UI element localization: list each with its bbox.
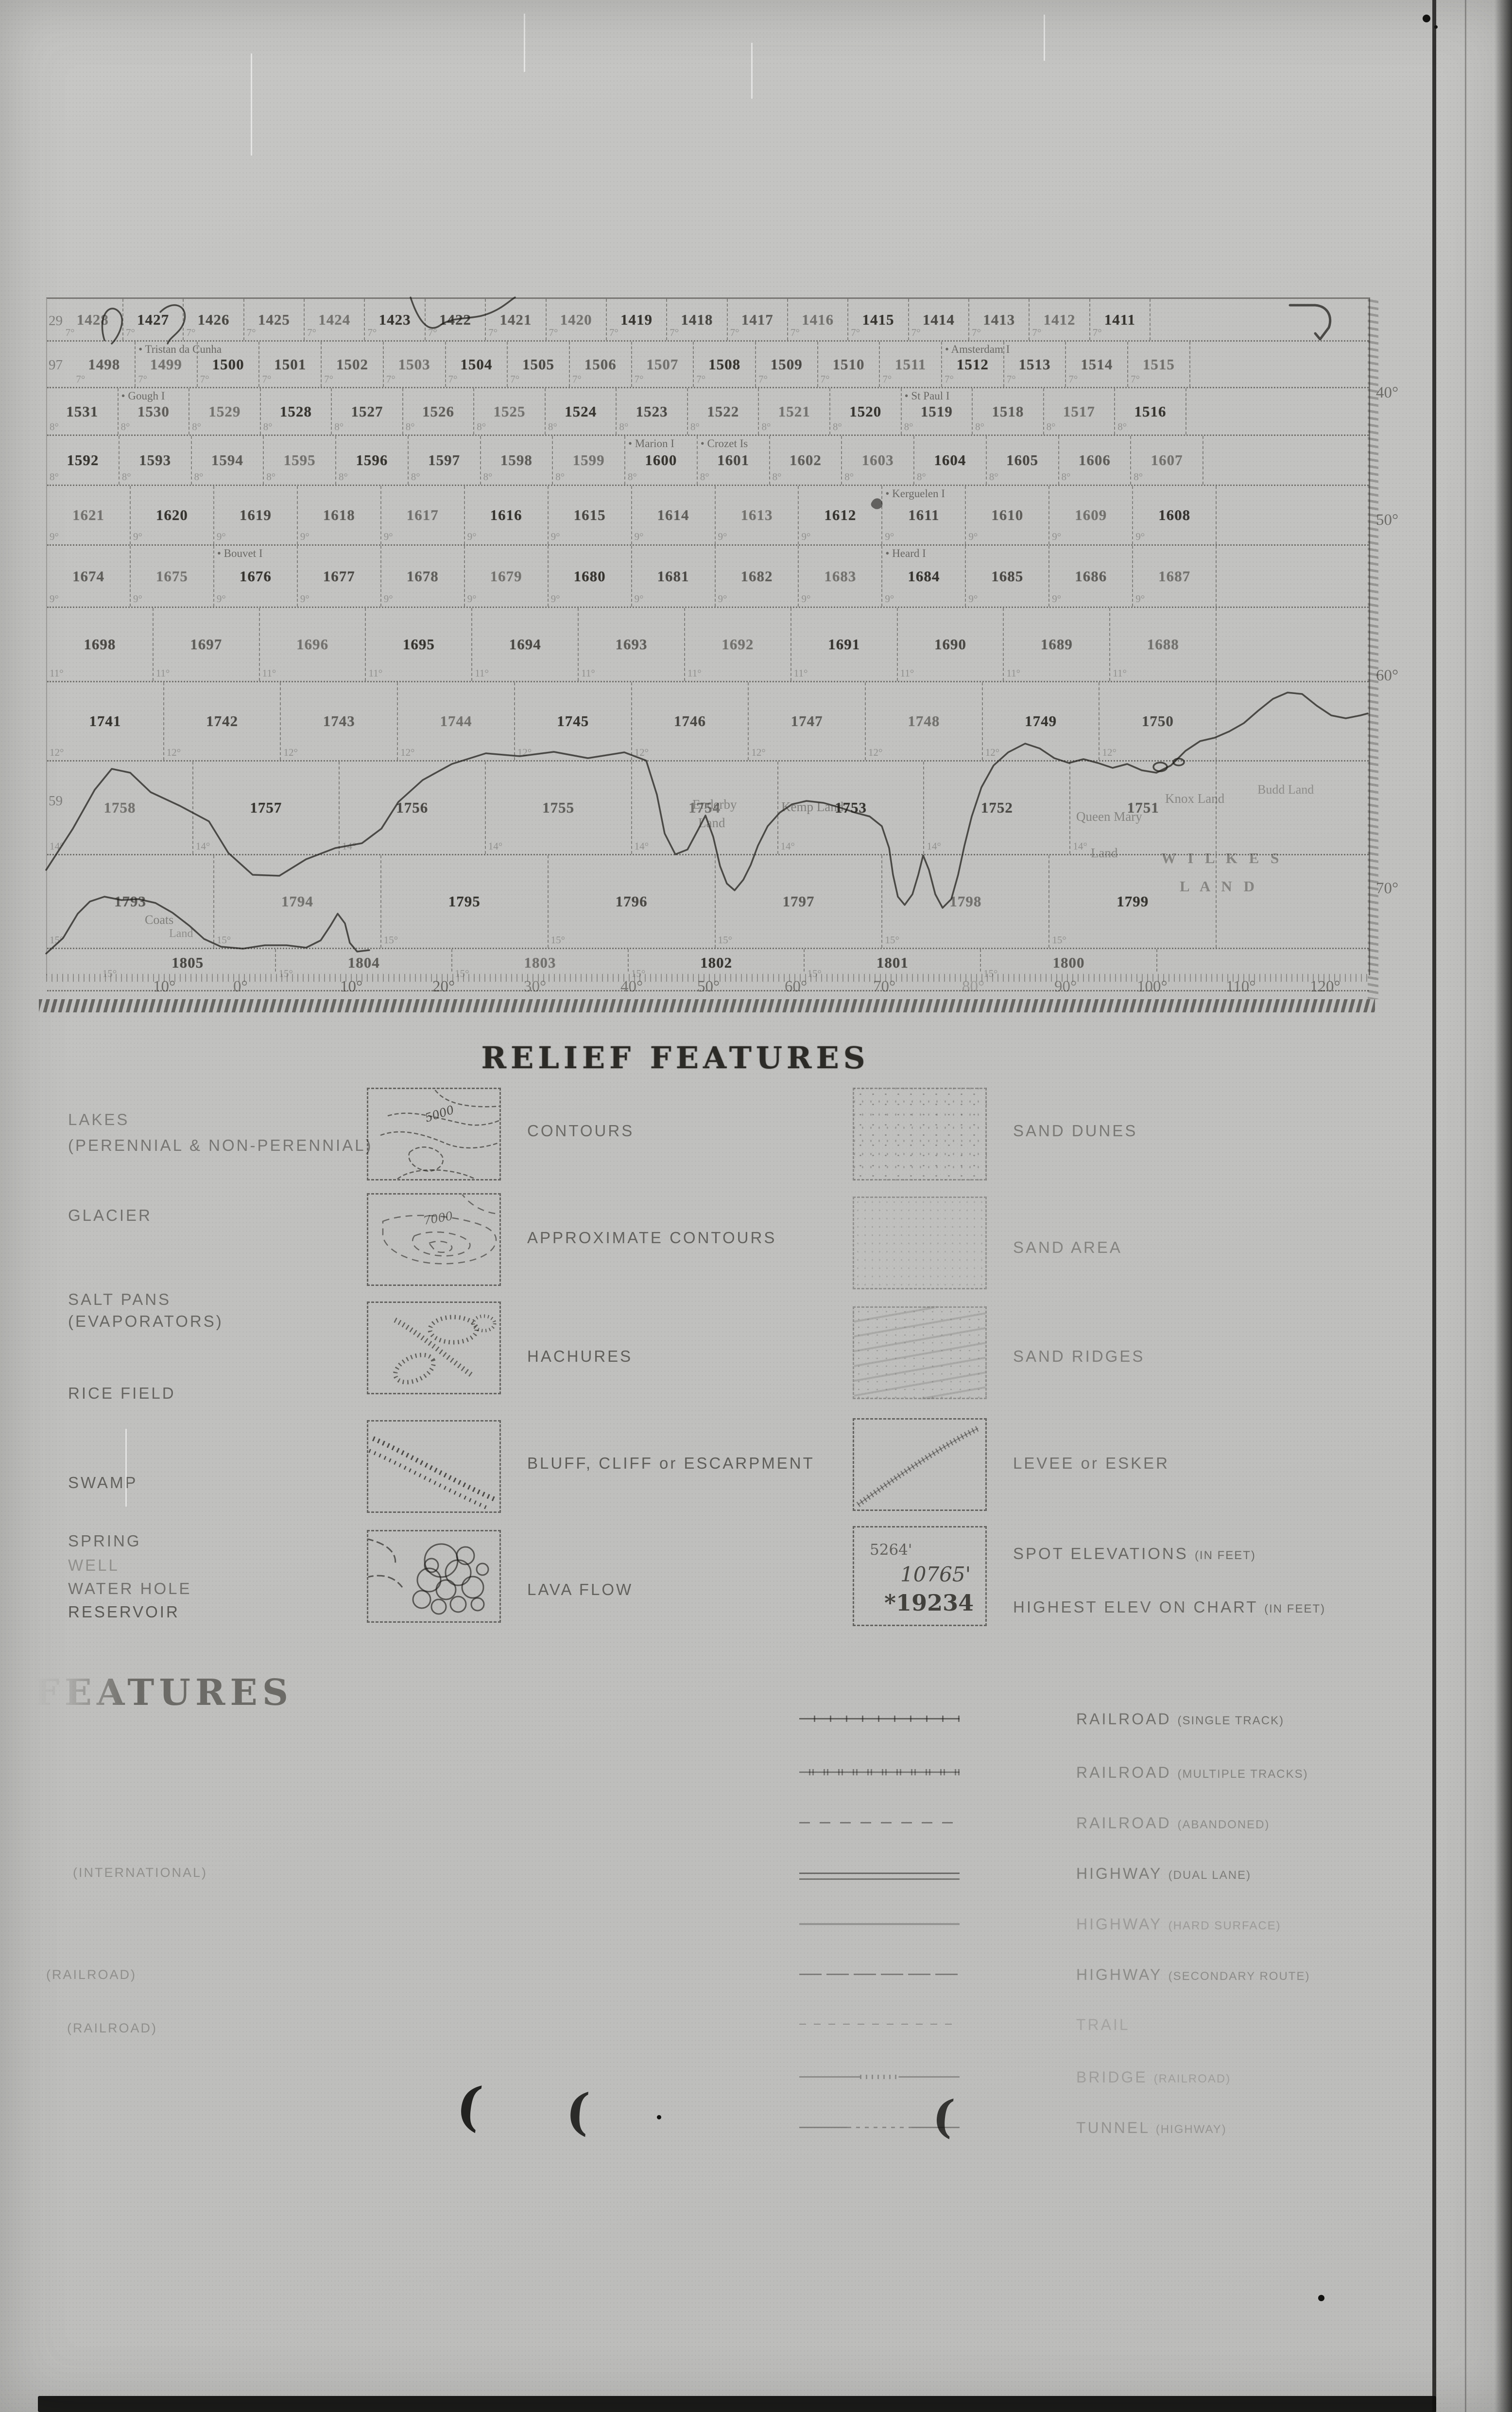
latitude-label: 50° — [1376, 511, 1398, 529]
sand-ridges-swatch-icon — [853, 1306, 987, 1399]
film-speck — [1434, 25, 1438, 29]
longitude-label: 90° — [1054, 978, 1077, 996]
relief-feature-name: SALT PANS — [68, 1290, 171, 1309]
cultural-row-name: HIGHWAY — [1076, 1915, 1168, 1933]
spot-elevations-swatch: 5264' 10765' *19234 — [853, 1526, 987, 1626]
island-name-note: • Marion I — [628, 437, 674, 450]
island-name-note: • Bouvet I — [217, 547, 263, 560]
relief-feature-name: GLACIER — [68, 1206, 152, 1225]
approximate-contours-swatch-icon: 7000 — [367, 1193, 501, 1286]
film-bottom-bar — [38, 2396, 1436, 2412]
cultural-row-subname: (SECONDARY ROUTE) — [1168, 1970, 1310, 1983]
cultural-row-label: HIGHWAY (HARD SURFACE) — [1076, 1915, 1281, 1933]
cultural-row-label: TRAIL — [1076, 2016, 1130, 2034]
white-scratch — [524, 14, 525, 72]
white-scratch — [1044, 15, 1045, 61]
cultural-row-subname: (DUAL LANE) — [1168, 1869, 1251, 1882]
film-speck — [1318, 2295, 1324, 2301]
island-name-note: • Kerguelen I — [885, 487, 945, 500]
land-name-label: Budd Land — [1257, 782, 1314, 797]
film-paren-artifact: ( — [452, 2074, 485, 2138]
longitude-label: 110° — [1226, 978, 1255, 996]
scanned-chart-legend-page: 2914287°14277°14267°14257°14247°14237°14… — [0, 0, 1512, 2412]
contours-label: CONTOURS — [527, 1122, 634, 1140]
cultural-row-name: BRIDGE — [1076, 2068, 1154, 2086]
relief-feature-name: SWAMP — [68, 1474, 137, 1492]
sand-dunes-label: SAND DUNES — [1013, 1122, 1137, 1140]
cultural-row-name: HIGHWAY — [1076, 1966, 1168, 1983]
relief-feature-name: RICE FIELD — [68, 1384, 176, 1403]
relief-feature-name: RESERVOIR — [68, 1603, 180, 1621]
antarctic-coastline-drawing — [46, 297, 1368, 974]
longitude-label: 60° — [785, 978, 807, 996]
cultural-row-name: TUNNEL — [1076, 2119, 1156, 2136]
cultural-row-label: RAILROAD (ABANDONED) — [1076, 1814, 1270, 1832]
cultural-row-name: RAILROAD — [1076, 1764, 1177, 1781]
rr-single-line-sample — [799, 1718, 960, 1719]
white-scratch — [125, 1429, 127, 1507]
contour-value: 5000 — [423, 1103, 456, 1125]
land-name-label: Enderby — [692, 797, 737, 812]
levee-esker-swatch-icon — [853, 1418, 987, 1511]
cultural-row-subname: (RAILROAD) — [1154, 2072, 1231, 2085]
rr-aband-line-sample — [799, 1822, 960, 1823]
cultural-row-subname: (HIGHWAY) — [1156, 2123, 1227, 2136]
relief-features-title: RELIEF FEATURES — [481, 1040, 870, 1076]
longitude-label: 40° — [620, 978, 643, 996]
land-name-label: Kemp Land — [781, 799, 843, 815]
film-edge-line-2 — [1465, 0, 1466, 2412]
cultural-row-subname: (HARD SURFACE) — [1168, 1919, 1281, 1932]
film-speck — [1423, 15, 1430, 22]
longitude-label: 30° — [524, 978, 546, 996]
cultural-row-name: RAILROAD — [1076, 1814, 1177, 1832]
white-scratch — [251, 53, 252, 156]
kerguelen-island-blob — [871, 498, 883, 509]
rr-multi-line-sample — [799, 1771, 960, 1773]
hwy-sec-line-sample — [799, 1974, 960, 1975]
cultural-row-name: TRAIL — [1076, 2016, 1130, 2033]
land-name-label: Land — [1091, 846, 1117, 861]
latitude-label: 40° — [1376, 384, 1398, 402]
island-name-note: • Crozet Is — [701, 437, 748, 450]
grid-edge-partial-number: 59 — [49, 793, 63, 809]
relief-feature-name: WATER HOLE — [68, 1579, 192, 1598]
coast-fragment-africa-tip — [411, 297, 515, 328]
sand-area-label: SAND AREA — [1013, 1238, 1122, 1257]
cultural-row-subname: (SINGLE TRACK) — [1177, 1714, 1284, 1727]
bluff-cliff-escarpment-label: BLUFF, CLIFF or ESCARPMENT — [527, 1454, 815, 1473]
film-paren-artifact: ( — [564, 2082, 592, 2141]
grid-edge-partial-number: 97 — [49, 357, 63, 373]
cultural-row-name: RAILROAD — [1076, 1710, 1177, 1728]
island-name-note: • St Paul I — [905, 390, 950, 402]
island-name-note: • Tristan da Cunha — [138, 343, 222, 356]
island-name-note: • Heard I — [885, 547, 926, 560]
relief-feature-subname: (PERENNIAL & NON-PERENNIAL) — [68, 1136, 373, 1155]
land-name-label: Land — [698, 816, 725, 831]
lava-flow-label: LAVA FLOW — [527, 1580, 633, 1599]
film-speck — [657, 2115, 661, 2119]
highest-elev-label: HIGHEST ELEV ON CHART (IN FEET) — [1013, 1598, 1325, 1616]
grid-edge-partial-number: 29 — [49, 313, 63, 329]
longitude-label: 10° — [340, 978, 362, 996]
cultural-row-subname: (ABANDONED) — [1177, 1818, 1270, 1831]
cultural-left-label: (RAILROAD) — [67, 2021, 157, 2036]
relief-feature-subname: (EVAPORATORS) — [68, 1312, 223, 1331]
cultural-features-heading: FEATURES — [34, 1672, 293, 1714]
longitude-label: 80° — [962, 978, 984, 996]
cultural-row-label: BRIDGE (RAILROAD) — [1076, 2068, 1231, 2086]
land-name-label: L A N D — [1180, 878, 1258, 895]
approximate-contours-label: APPROXIMATE CONTOURS — [527, 1229, 776, 1247]
coastline-coats-path — [46, 897, 369, 954]
hwy-dual-line-sample — [799, 1873, 960, 1880]
film-edge-line — [1432, 0, 1436, 2412]
cultural-row-label: TUNNEL (HIGHWAY) — [1076, 2119, 1227, 2137]
bridge-line-sample — [799, 2076, 960, 2078]
contours-swatch-icon: 5000 — [367, 1088, 501, 1180]
latitude-label: 70° — [1376, 880, 1398, 898]
hachures-label: HACHURES — [527, 1347, 633, 1366]
cultural-row-label: HIGHWAY (SECONDARY ROUTE) — [1076, 1966, 1310, 1984]
longitude-label: 0° — [233, 978, 248, 996]
spot-elevations-label: SPOT ELEVATIONS (IN FEET) — [1013, 1544, 1256, 1563]
cultural-row-label: RAILROAD (MULTIPLE TRACKS) — [1076, 1764, 1308, 1782]
hachures-swatch-icon — [367, 1301, 501, 1394]
spot-elevation-value-1: 5264' — [870, 1541, 912, 1559]
longitude-label: 70° — [873, 978, 895, 996]
sand-dunes-swatch-icon — [853, 1088, 987, 1180]
island-name-note: • Amsterdam I — [945, 343, 1010, 356]
white-scratch — [751, 43, 753, 99]
cultural-left-label: (RAILROAD) — [46, 1967, 137, 1982]
highest-elevation-value: *19234 — [884, 1590, 974, 1616]
cultural-row-label: RAILROAD (SINGLE TRACK) — [1076, 1710, 1284, 1728]
spot-elevation-value-2: 10765' — [900, 1562, 971, 1586]
longitude-label: 10° — [153, 978, 175, 996]
relief-feature-name: WELL — [68, 1556, 120, 1575]
cultural-left-label: (INTERNATIONAL) — [73, 1865, 207, 1880]
page-edge-shadow — [1495, 0, 1512, 2412]
latitude-label: 60° — [1376, 667, 1398, 685]
longitude-label: 20° — [432, 978, 455, 996]
coast-fragment-curl-1 — [102, 309, 122, 344]
bluff-cliff-escarpment-swatch-icon — [367, 1420, 501, 1513]
cultural-row-label: HIGHWAY (DUAL LANE) — [1076, 1865, 1251, 1883]
relief-feature-name: LAKES — [68, 1111, 129, 1129]
longitude-label: 100° — [1137, 978, 1168, 996]
cultural-row-name: HIGHWAY — [1076, 1865, 1168, 1882]
relief-feature-name: SPRING — [68, 1532, 141, 1550]
land-name-label: Knox Land — [1165, 791, 1224, 806]
land-name-label: W I L K E S — [1161, 850, 1283, 867]
cultural-row-subname: (MULTIPLE TRACKS) — [1177, 1768, 1308, 1781]
sand-ridges-label: SAND RIDGES — [1013, 1347, 1145, 1366]
longitude-label: 50° — [697, 978, 720, 996]
sand-area-swatch-icon — [853, 1197, 987, 1289]
film-paren-artifact: ( — [930, 2089, 957, 2143]
hook-mark — [1290, 305, 1330, 339]
grid-bottom-hatched-border — [39, 999, 1375, 1012]
coast-fragment-curl-2 — [160, 305, 185, 344]
land-name-label: Land — [169, 927, 193, 940]
levee-esker-label: LEVEE or ESKER — [1013, 1454, 1169, 1473]
approx-contour-value: 7000 — [422, 1209, 454, 1228]
hwy-hard-line-sample — [799, 1923, 960, 1925]
land-name-label: Coats — [145, 913, 173, 927]
island-name-note: • Gough I — [121, 390, 165, 402]
longitude-label: 120° — [1310, 978, 1340, 996]
lava-flow-swatch-icon — [367, 1530, 501, 1623]
land-name-label: Queen Mary — [1076, 809, 1142, 824]
trail-line-sample — [799, 2024, 960, 2025]
